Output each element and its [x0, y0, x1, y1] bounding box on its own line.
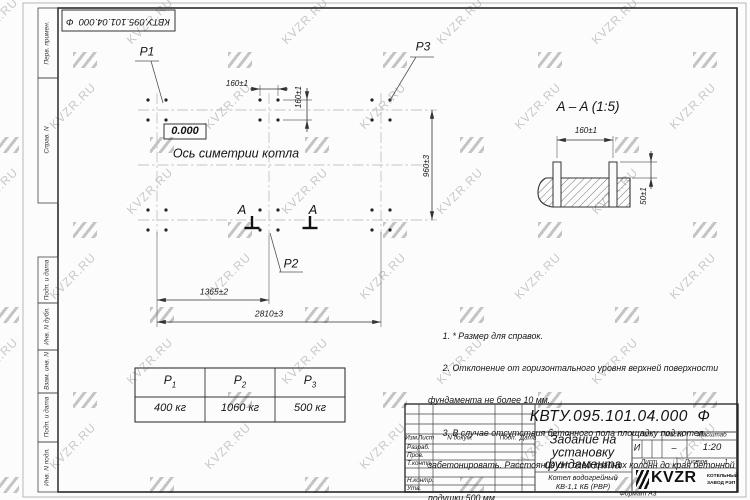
side-field-inv-podl: Инв. N подл. — [45, 448, 52, 486]
dim-960: 960±3 — [423, 155, 431, 177]
note-line: 2. Отклонение от горизонтального уровня … — [428, 363, 746, 374]
section-view-geometry — [538, 162, 630, 207]
section-letter-right: A — [309, 203, 318, 217]
tb-product-line1: Котел водогрейный — [548, 474, 617, 482]
tb-row-prov: Пров. — [407, 453, 424, 460]
tb-col-data: Дата — [520, 436, 537, 443]
section-view-title: A – A (1:5) — [556, 100, 619, 114]
load-table-header-p3: P3 — [304, 374, 316, 390]
tb-title-line3: фундамента — [545, 458, 622, 471]
tb-massa-label: Масса — [665, 433, 684, 440]
tb-row-tkontr: Т.контр. — [407, 461, 432, 468]
tb-product-line2: КВ-1,1 КБ (РВР) — [556, 483, 610, 491]
tb-lit-value: И — [634, 443, 640, 452]
tb-listov-label: Листов — [685, 460, 708, 467]
kvzr-logo-icon — [636, 470, 649, 489]
point-label-p1: P1 — [140, 46, 155, 59]
note-line: фундамента не более 10 мм. — [428, 395, 746, 406]
tb-col-ndokum: N докум. — [447, 436, 472, 443]
section-cut-marks — [245, 216, 318, 228]
load-table-value-p2: 1060 кг — [221, 403, 259, 415]
load-table-value-p3: 500 кг — [294, 403, 326, 415]
side-field-sprav-n: Справ. N — [45, 126, 52, 153]
point-label-p2: P2 — [284, 258, 299, 271]
drawing-sheet: KVZR.RUKVZR.RUKVZR.RUKVZR.RUKVZR.RUKVZR.… — [0, 0, 750, 500]
tb-lit-label: Лит. — [640, 433, 655, 440]
tb-masshtab-value: 1:20 — [703, 443, 722, 453]
plan-centerlines — [138, 93, 437, 235]
tb-col-podp: Подп. — [500, 436, 517, 443]
tb-row-utv: Утв. — [407, 486, 421, 493]
dim-160-vertical: 160±1 — [295, 86, 303, 108]
format-label: Формат А3 — [619, 490, 656, 497]
section-dim-160: 160±1 — [575, 127, 597, 135]
kvzr-logo-text: KVZR — [651, 470, 697, 487]
tb-row-razrab: Разраб. — [407, 445, 430, 452]
tb-doc-number: КВТУ.095.101.04.000 Ф — [530, 409, 711, 425]
level-mark: 0.000 — [171, 126, 199, 138]
section-letter-left: A — [238, 203, 247, 217]
side-field-vzam-inv: Взам. инв. N — [45, 352, 52, 390]
section-dim-50: 50±1 — [640, 187, 648, 205]
tb-list-label: Лист — [641, 460, 657, 467]
dim-1365: 1365±2 — [200, 288, 228, 297]
tb-row-nkontr: Н.контр. — [407, 478, 434, 485]
side-field-perv-primen: Перв. примен. — [45, 21, 52, 64]
load-table-value-p1: 400 кг — [154, 403, 186, 415]
symmetry-axis-label: Ось симетрии котла — [173, 147, 299, 160]
doc-number-top: КВТУ.095.101.04.000 Ф — [66, 16, 170, 26]
kvzr-logo-sub1: КОТЕЛЬНЫЙ — [707, 474, 738, 479]
side-field-inv-dubl: Инв. N дубл. — [45, 307, 52, 345]
dim-2810: 2810±3 — [255, 310, 283, 319]
tb-col-list: Лист — [418, 436, 434, 443]
tb-listov-value: 1 — [724, 460, 728, 467]
point-label-p3: P3 — [416, 41, 431, 54]
load-table-header-p1: P1 — [164, 374, 176, 390]
tb-col-izm: Изм. — [405, 436, 418, 443]
side-field-podp-data-1: Подп. и дата — [45, 260, 52, 301]
dim-160-horizontal: 160±1 — [226, 80, 248, 88]
note-line: 1. * Размер для справок. — [428, 331, 746, 342]
load-table-header-p2: P2 — [234, 374, 246, 390]
tb-massa-value: – — [671, 443, 676, 452]
kvzr-logo-sub2: ЗАВОД РЭП — [707, 481, 735, 486]
tb-masshtab-label: Масштаб — [697, 433, 726, 440]
side-field-podp-data-2: Подп. и дата — [45, 397, 52, 438]
note-line: подушки 500 мм. — [428, 493, 746, 500]
